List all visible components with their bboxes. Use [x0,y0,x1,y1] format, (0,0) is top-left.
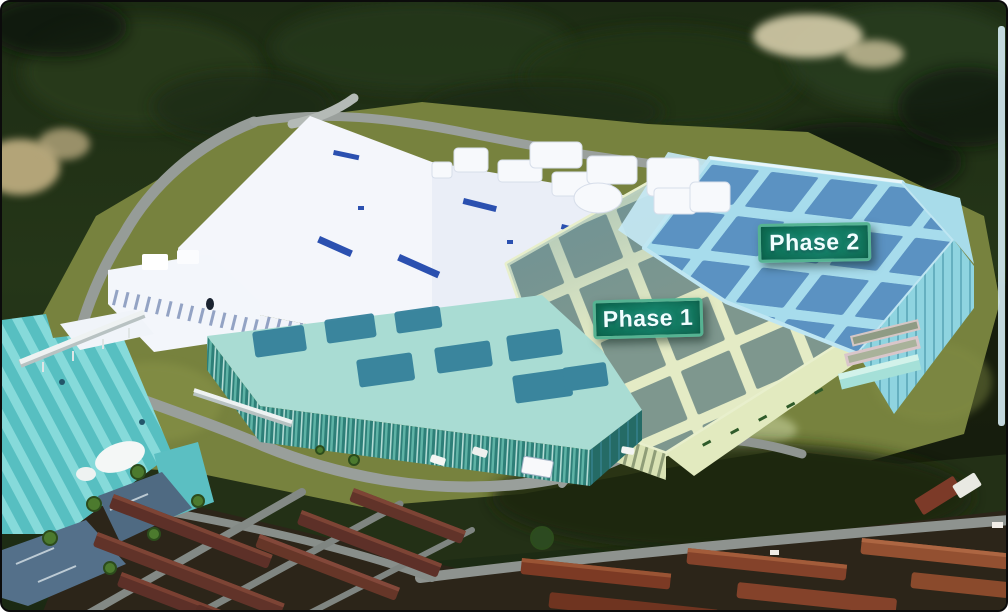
aerial-site-rendering: Phase 1 Phase 2 [0,0,1008,612]
rendering-frame: Phase 1 Phase 2 [0,0,1008,612]
site-illustration [2,2,1008,612]
phase-1-label-text: Phase 1 [602,304,693,333]
right-edge-light-strip [998,26,1005,426]
annex-door [206,298,214,310]
phase-2-label-badge: Phase 2 [758,222,872,263]
phase-1-label-badge: Phase 1 [593,298,704,340]
storage-tank [574,183,622,213]
phase-2-label-text: Phase 2 [769,228,860,257]
